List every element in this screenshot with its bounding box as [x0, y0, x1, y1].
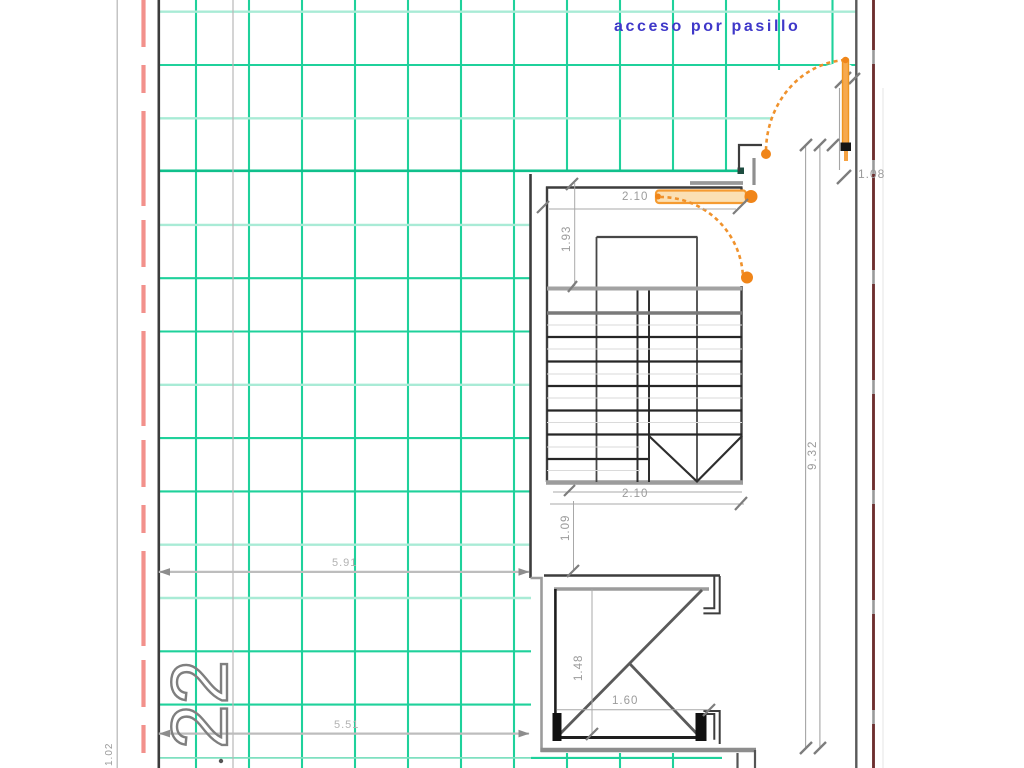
svg-text:1.48: 1.48 — [573, 655, 585, 681]
svg-text:acceso por pasillo: acceso por pasillo — [614, 18, 800, 35]
svg-text:2.10: 2.10 — [622, 488, 648, 500]
svg-text:9.32: 9.32 — [807, 440, 819, 470]
svg-text:5.91: 5.91 — [332, 557, 357, 569]
svg-text:1.09: 1.09 — [560, 515, 572, 541]
svg-text:1.02: 1.02 — [104, 743, 115, 766]
svg-text:22: 22 — [155, 660, 244, 749]
svg-text:5.51: 5.51 — [334, 719, 359, 731]
svg-text:1.60: 1.60 — [612, 695, 638, 707]
svg-text:1.08: 1.08 — [858, 167, 885, 181]
svg-text:1.93: 1.93 — [561, 226, 573, 252]
svg-text:2.10: 2.10 — [622, 191, 648, 203]
